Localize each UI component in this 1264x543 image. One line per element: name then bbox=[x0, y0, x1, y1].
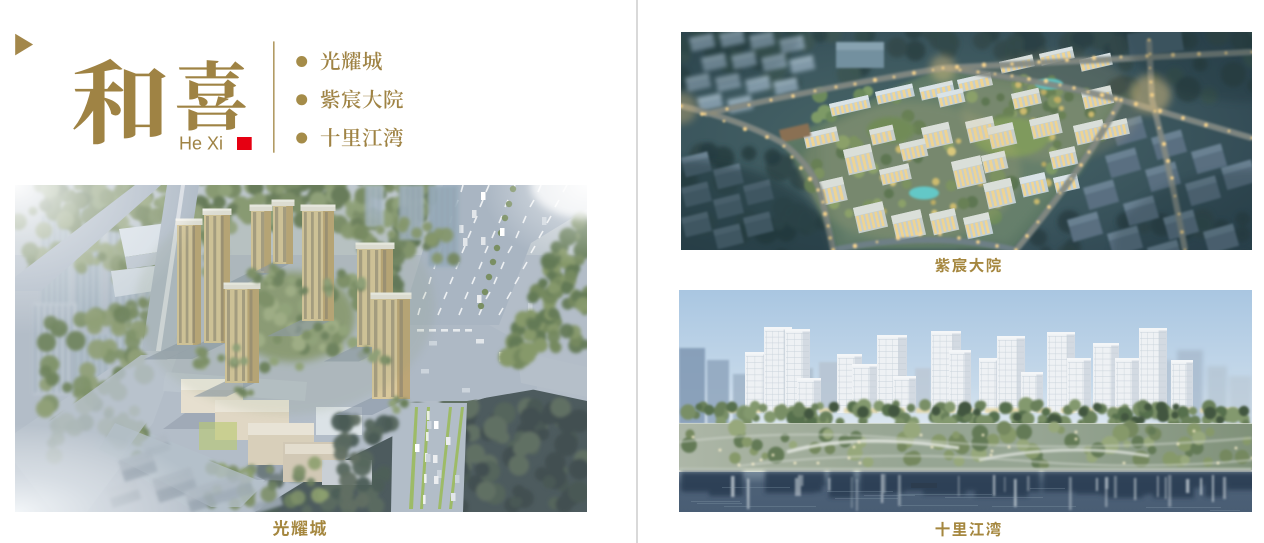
svg-text:He Xi: He Xi bbox=[179, 134, 223, 154]
